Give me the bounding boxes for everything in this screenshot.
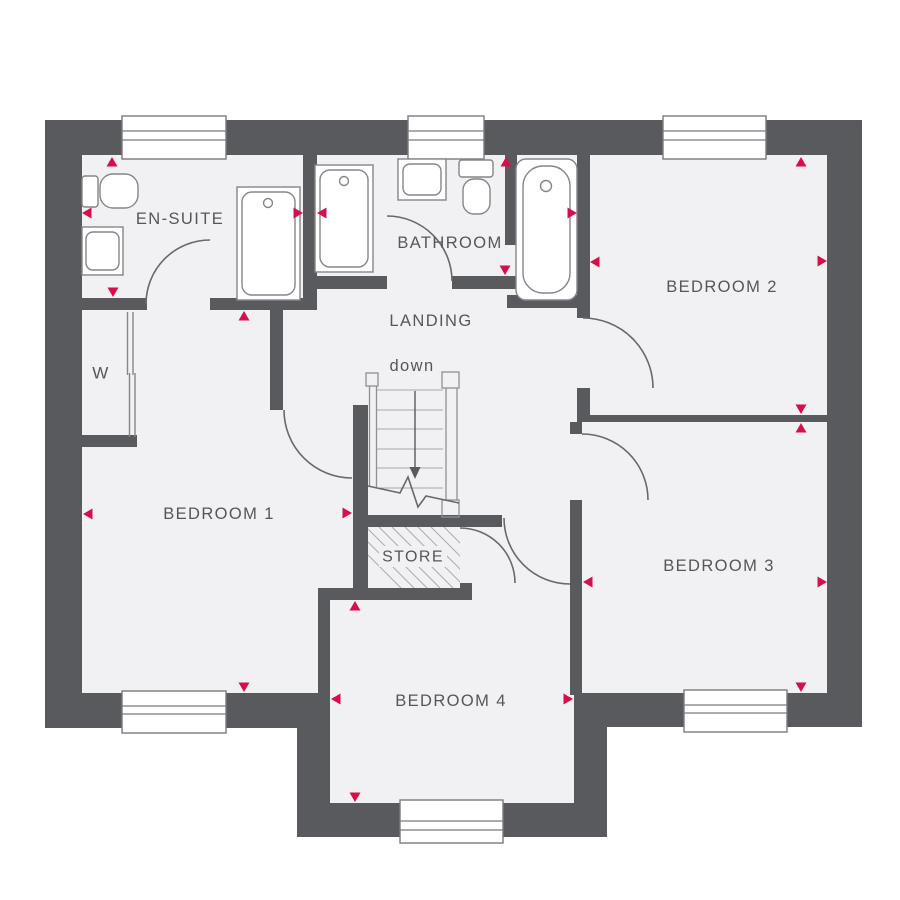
window-bedroom2 [663, 116, 766, 159]
room-label-bathroom: BATHROOM [397, 234, 502, 252]
room-label-bedroom-2: BEDROOM 2 [666, 278, 778, 296]
wall-exterior-right [827, 120, 862, 727]
ensuite-toilet-cistern-icon [82, 176, 98, 207]
window-bedroom4 [400, 800, 503, 843]
room-label-en-suite: EN-SUITE [136, 210, 224, 228]
wall-bedroom3-left-lower [570, 500, 582, 695]
ensuite-toilet-bowl-icon [100, 174, 138, 208]
room-label-wardrobe: W [92, 364, 109, 383]
wall-wardrobe-bottom [78, 435, 137, 447]
wall-bathroom-bottom-left [303, 276, 387, 289]
wall-tub-bedroom2-divider [577, 155, 590, 318]
room-label-store: STORE [382, 549, 444, 566]
wall-store-right-stub [460, 583, 472, 600]
room-label-landing: LANDING [389, 312, 472, 330]
ensuite-shower-icon [237, 187, 300, 300]
wall-stair-store-west [353, 405, 368, 600]
room-label-bedroom-1: BEDROOM 1 [163, 505, 275, 523]
wall-store-top [360, 515, 502, 527]
window-bathroom [408, 116, 484, 159]
window-ensuite [122, 116, 226, 159]
wall-bathroom-bottom-right [452, 276, 517, 289]
room-label-bedroom-3: BEDROOM 3 [663, 557, 775, 575]
stairs-down-label: down [389, 357, 434, 375]
bathroom-shower-icon [315, 165, 373, 272]
room-label-bedroom-4: BEDROOM 4 [395, 692, 507, 710]
wall-bedroom2-bedroom3-divider [583, 415, 828, 422]
wall-bathroom-tub-stub [505, 155, 517, 245]
window-bedroom1 [122, 691, 226, 733]
wall-ensuite-bottom-left [78, 298, 147, 310]
wall-bedroom1-bedroom4-divider [318, 588, 330, 695]
floor-plan-page: EN-SUITEBATHROOMLANDINGBEDROOM 1BEDROOM … [0, 0, 900, 900]
wall-bedroom1-ensuite-divider [270, 298, 283, 410]
wall-bedroom4-top [330, 588, 460, 600]
wall-bedroom3-left-stub [570, 422, 582, 434]
bathroom-toilet-cistern-icon [459, 160, 493, 177]
floor-plan: EN-SUITEBATHROOMLANDINGBEDROOM 1BEDROOM … [0, 0, 900, 900]
window-bedroom3 [684, 690, 787, 732]
bathroom-toilet-bowl-icon [463, 179, 490, 214]
bedroom4-floor [310, 600, 590, 820]
wall-exterior-left [45, 120, 82, 728]
